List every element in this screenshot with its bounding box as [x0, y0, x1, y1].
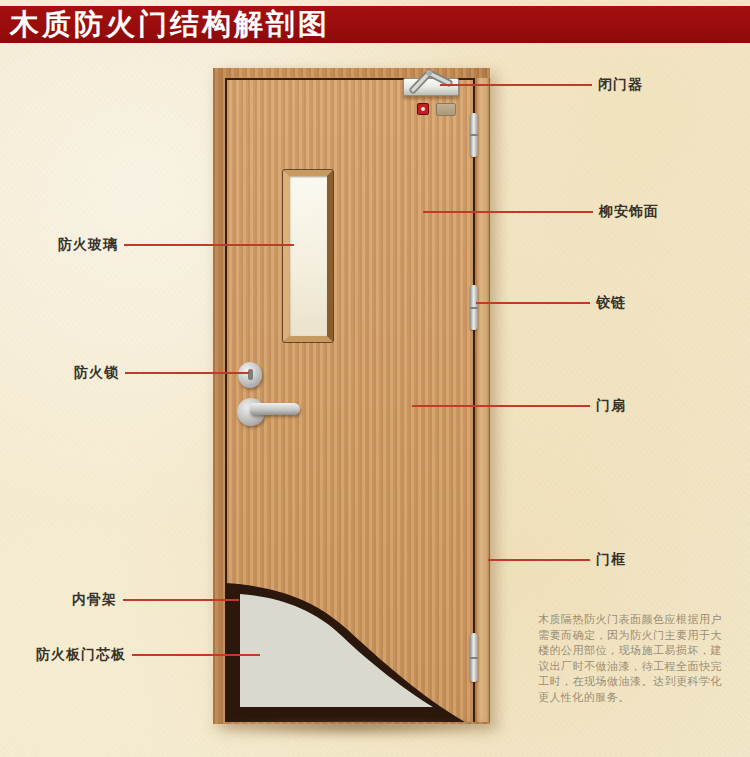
label-door-frame: 门框 — [596, 551, 626, 569]
door-shadow — [203, 721, 505, 737]
leader-line — [125, 372, 249, 374]
leader-line — [132, 654, 260, 656]
hinge-bottom — [470, 633, 478, 682]
label-inner-frame: 内骨架 — [72, 591, 117, 609]
annotation-door-closer: 闭门器 — [440, 76, 643, 94]
fire-glass-pane — [289, 176, 327, 336]
page-title: 木质防火门结构解剖图 — [0, 6, 330, 43]
annotation-door-frame: 门框 — [488, 551, 626, 569]
core-board-shape — [240, 594, 433, 707]
label-fire-glass: 防火玻璃 — [58, 236, 118, 254]
leader-line — [440, 84, 592, 86]
description-text: 木质隔热防火门表面颜色应根据用户需要而确定，因为防火门主要用于大楼的公用部位，现… — [538, 612, 722, 705]
alarm-indicator-light — [421, 107, 425, 111]
leader-line — [423, 211, 593, 213]
title-banner: 木质防火门结构解剖图 — [0, 6, 750, 43]
annotation-door-leaf: 门扇 — [412, 397, 626, 415]
label-core-board: 防火板门芯板 — [36, 646, 126, 664]
page-background: 木质防火门结构解剖图 — [0, 0, 750, 757]
annotation-veneer: 柳安饰面 — [423, 203, 659, 221]
closer-arm-joint — [426, 70, 432, 76]
cutaway-section — [223, 580, 478, 724]
door-handle-lever — [250, 403, 300, 415]
hinge-joint — [470, 134, 478, 136]
leader-line — [124, 244, 294, 246]
leader-line — [488, 559, 590, 561]
label-veneer: 柳安饰面 — [599, 203, 659, 221]
leader-line — [412, 405, 590, 407]
annotation-hinge: 铰链 — [476, 294, 626, 312]
annotation-fire-lock: 防火锁 — [74, 364, 249, 382]
annotation-core-board: 防火板门芯板 — [36, 646, 260, 664]
window-frame — [283, 170, 333, 342]
label-door-closer: 闭门器 — [598, 76, 643, 94]
alarm-indicator — [417, 103, 429, 115]
door-assembly — [213, 68, 490, 724]
hinge-top — [470, 113, 478, 157]
annotation-inner-frame: 内骨架 — [72, 591, 239, 609]
strike-plate — [436, 103, 456, 116]
leader-line — [476, 302, 590, 304]
annotation-fire-glass: 防火玻璃 — [58, 236, 294, 254]
label-hinge: 铰链 — [596, 294, 626, 312]
leader-line — [123, 599, 239, 601]
label-door-leaf: 门扇 — [596, 397, 626, 415]
label-fire-lock: 防火锁 — [74, 364, 119, 382]
hinge-joint — [470, 657, 478, 659]
